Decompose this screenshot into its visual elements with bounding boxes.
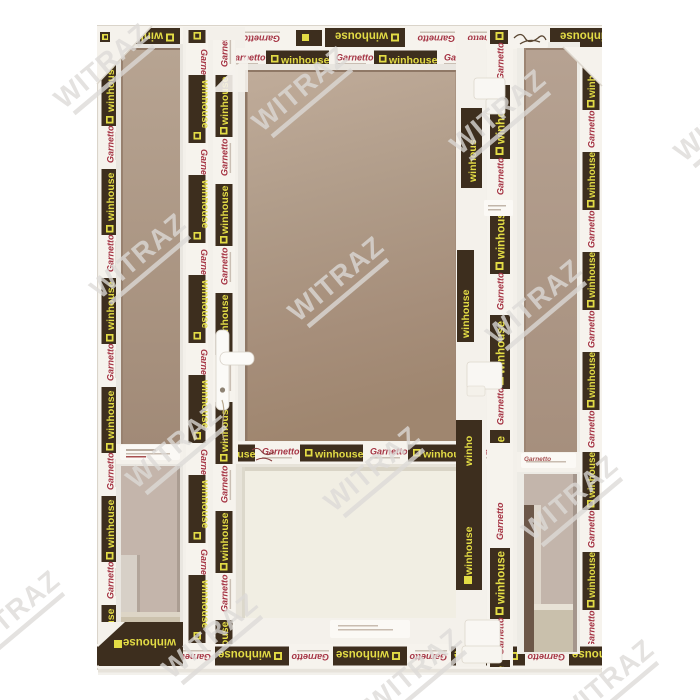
svg-text:winho: winho — [463, 436, 475, 467]
svg-text:winhouse: winhouse — [463, 526, 475, 576]
svg-text:winhouse: winhouse — [123, 636, 177, 648]
svg-text:Garnetto: Garnetto — [495, 502, 505, 540]
svg-text:winhouse: winhouse — [460, 289, 472, 339]
